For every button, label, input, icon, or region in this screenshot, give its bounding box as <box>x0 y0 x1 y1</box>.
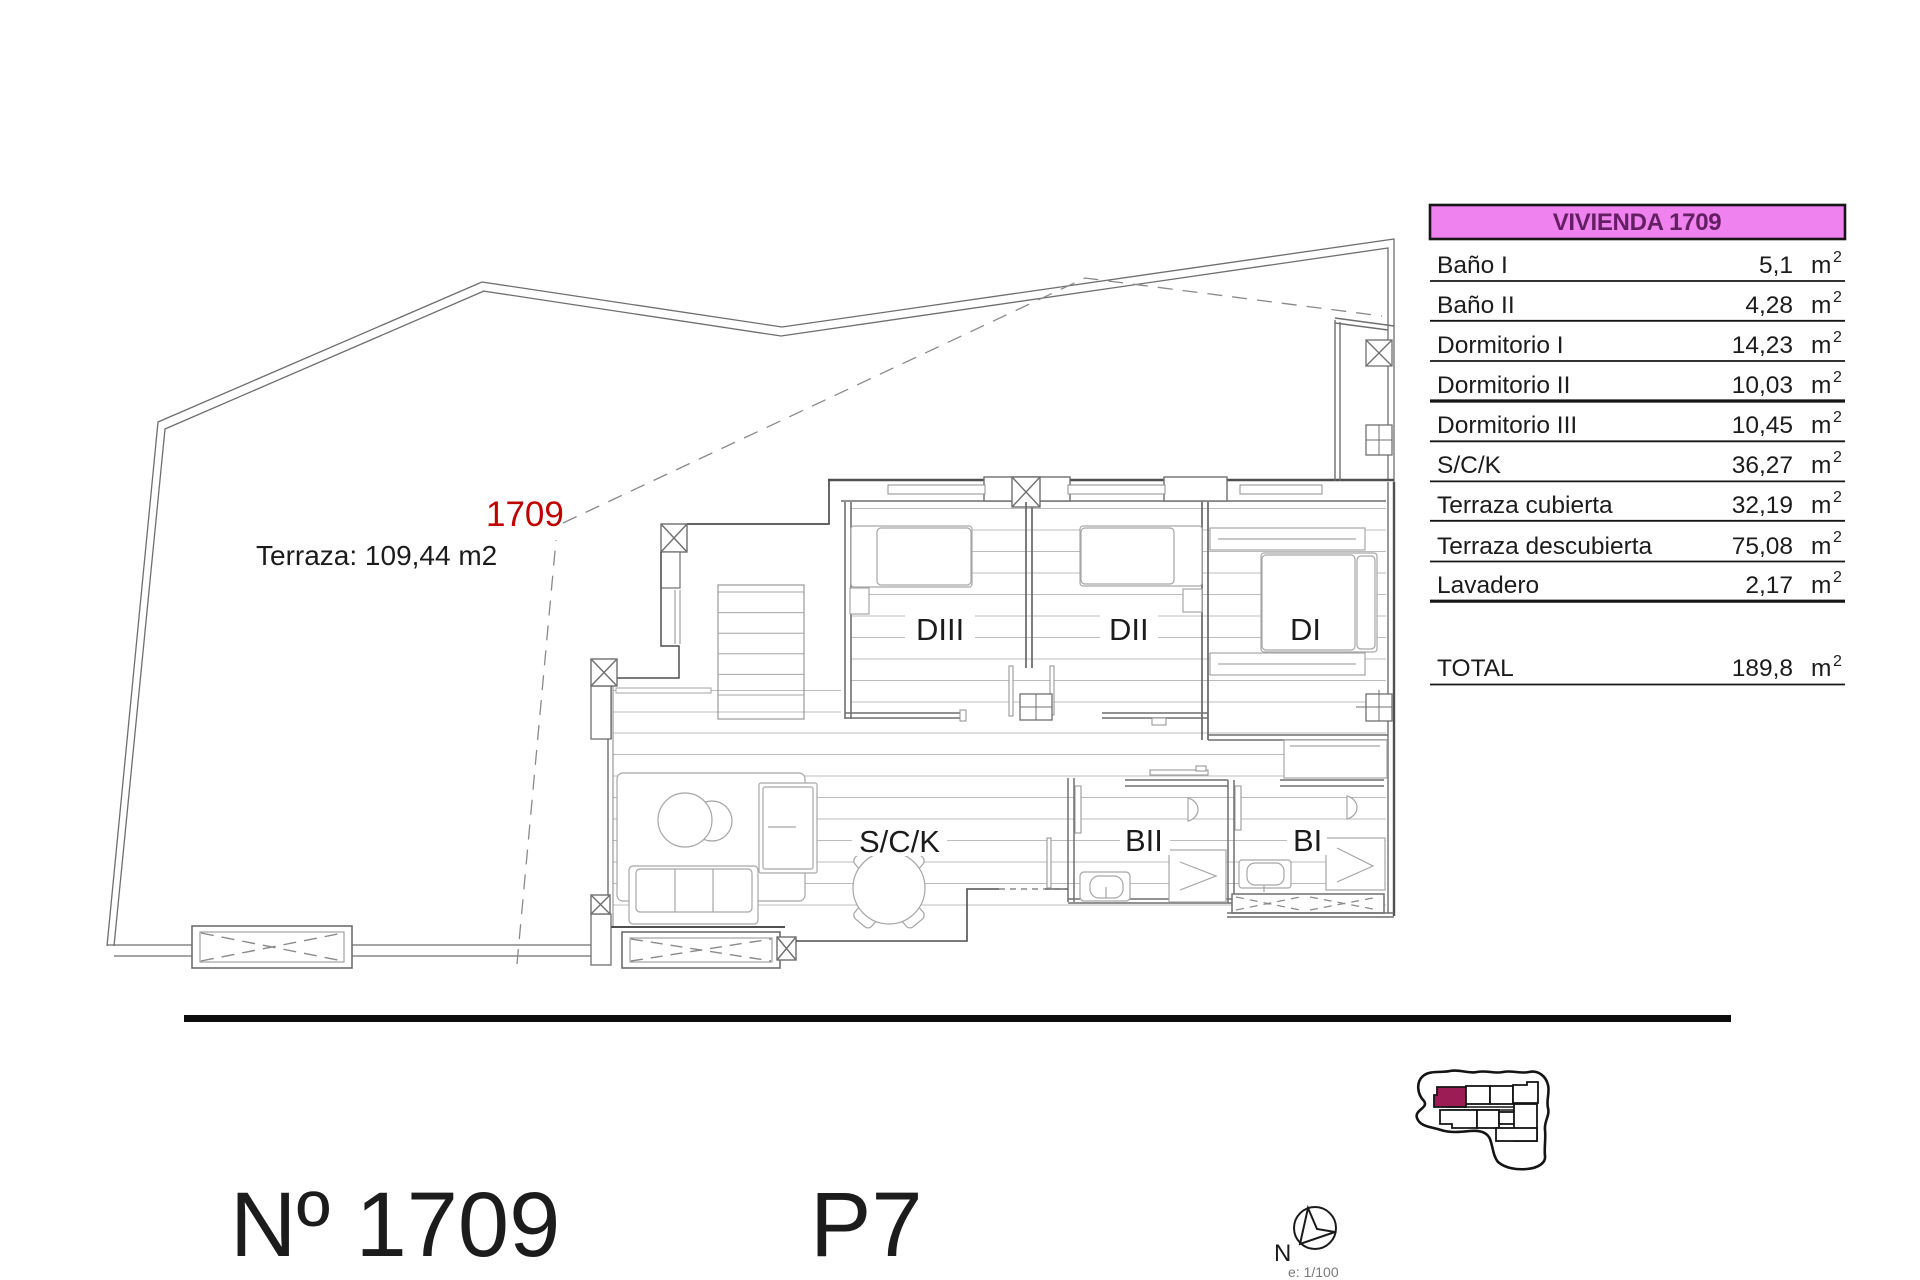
svg-text:e: 1/100: e: 1/100 <box>1288 1264 1339 1280</box>
svg-text:Dormitorio III: Dormitorio III <box>1437 412 1577 439</box>
svg-text:2: 2 <box>1833 329 1842 346</box>
svg-text:BI: BI <box>1293 823 1322 858</box>
svg-text:DII: DII <box>1109 612 1149 647</box>
svg-text:2: 2 <box>1833 569 1842 586</box>
svg-text:BII: BII <box>1125 823 1163 858</box>
svg-text:Dormitorio I: Dormitorio I <box>1437 332 1564 359</box>
svg-text:2: 2 <box>1833 449 1842 466</box>
svg-text:4,28: 4,28 <box>1745 292 1793 319</box>
svg-text:P7: P7 <box>810 1174 923 1276</box>
svg-text:m: m <box>1811 332 1831 359</box>
svg-text:Baño I: Baño I <box>1437 252 1508 279</box>
svg-text:m: m <box>1811 452 1831 479</box>
svg-text:S/C/K: S/C/K <box>859 824 940 859</box>
svg-text:Dormitorio II: Dormitorio II <box>1437 372 1570 399</box>
svg-text:2: 2 <box>1833 529 1842 546</box>
svg-text:Baño II: Baño II <box>1437 292 1515 319</box>
svg-text:36,27: 36,27 <box>1732 452 1793 479</box>
svg-text:m: m <box>1811 292 1831 319</box>
svg-text:2: 2 <box>1833 249 1842 266</box>
svg-text:75,08: 75,08 <box>1732 533 1793 560</box>
svg-text:2: 2 <box>1833 489 1842 506</box>
svg-text:1709: 1709 <box>486 495 564 534</box>
svg-text:189,8: 189,8 <box>1732 655 1793 682</box>
svg-text:DIII: DIII <box>916 612 964 647</box>
svg-text:m: m <box>1811 372 1831 399</box>
svg-text:m: m <box>1811 572 1831 599</box>
svg-text:VIVIENDA 1709: VIVIENDA 1709 <box>1553 209 1722 236</box>
svg-text:2: 2 <box>1833 409 1842 426</box>
svg-text:Terraza descubierta: Terraza descubierta <box>1437 533 1653 560</box>
svg-text:14,23: 14,23 <box>1732 332 1793 359</box>
svg-text:2: 2 <box>1833 289 1842 306</box>
svg-text:5,1: 5,1 <box>1759 252 1793 279</box>
svg-text:2: 2 <box>1833 369 1842 386</box>
svg-text:S/C/K: S/C/K <box>1437 452 1502 479</box>
svg-text:DI: DI <box>1290 612 1321 647</box>
svg-text:32,19: 32,19 <box>1732 492 1793 519</box>
svg-text:10,03: 10,03 <box>1732 372 1793 399</box>
svg-text:2,17: 2,17 <box>1745 572 1793 599</box>
svg-text:2: 2 <box>1833 653 1842 670</box>
svg-text:Terraza cubierta: Terraza cubierta <box>1437 492 1613 519</box>
svg-text:m: m <box>1811 252 1831 279</box>
svg-text:N: N <box>1274 1240 1291 1267</box>
svg-text:m: m <box>1811 412 1831 439</box>
svg-text:10,45: 10,45 <box>1732 412 1793 439</box>
svg-text:Lavadero: Lavadero <box>1437 572 1539 599</box>
svg-text:m: m <box>1811 533 1831 560</box>
svg-text:m: m <box>1811 492 1831 519</box>
svg-text:TOTAL: TOTAL <box>1437 655 1514 682</box>
svg-text:Nº 1709: Nº 1709 <box>230 1174 560 1276</box>
svg-text:m: m <box>1811 655 1831 682</box>
svg-text:Terraza: 109,44 m2: Terraza: 109,44 m2 <box>256 540 497 571</box>
